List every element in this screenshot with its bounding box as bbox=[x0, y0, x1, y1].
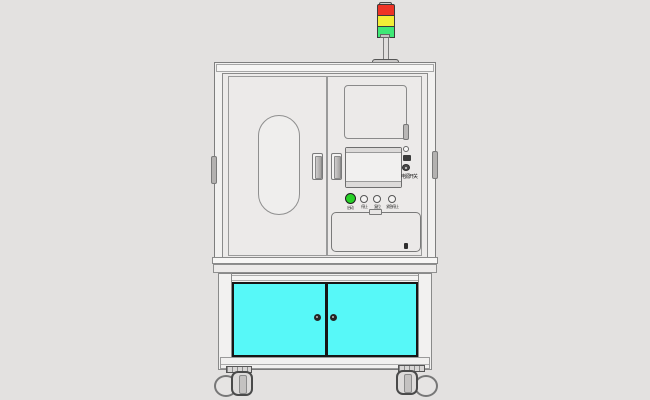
estop-button-label: 紧急停止 bbox=[383, 204, 401, 209]
right-cabinet-door-knob bbox=[330, 314, 337, 321]
screen-top-trim bbox=[346, 148, 401, 153]
door-divider bbox=[325, 282, 328, 357]
start-button-cap bbox=[345, 193, 356, 204]
right-door-handle bbox=[331, 153, 342, 180]
estop-button: 紧急停止 bbox=[383, 195, 401, 209]
lower-cabinet-top-rail bbox=[220, 275, 430, 281]
estop-button-cap bbox=[388, 195, 396, 203]
power-indicator-lamp bbox=[403, 146, 409, 152]
access-panel-lock bbox=[404, 243, 408, 249]
stadium-viewing-window bbox=[258, 115, 300, 215]
lower-cabinet-right-post bbox=[418, 273, 432, 370]
reset-button-cap bbox=[373, 195, 381, 203]
left-side-handle bbox=[211, 156, 217, 184]
hinged-upper-window bbox=[344, 85, 407, 139]
touch-screen-monitor bbox=[345, 147, 402, 188]
stop-button: 停止 bbox=[357, 195, 371, 209]
reset-button: 复位 bbox=[370, 195, 384, 209]
bench-band bbox=[213, 264, 437, 273]
screen-bottom-trim bbox=[346, 181, 401, 187]
left-cabinet-door-knob bbox=[314, 314, 321, 321]
right-side-handle bbox=[432, 151, 438, 179]
bench-top-edge bbox=[212, 257, 438, 264]
upper-window-handle bbox=[403, 124, 409, 140]
access-panel-latch bbox=[369, 209, 382, 215]
stop-button-cap bbox=[360, 195, 368, 203]
caster-left-wheel bbox=[231, 371, 253, 396]
left-door-handle bbox=[312, 153, 323, 180]
start-button: 启动 bbox=[343, 193, 357, 210]
upper-cabinet-top-bar bbox=[216, 64, 434, 72]
caster-right-wheel bbox=[396, 370, 418, 395]
rocker-switch bbox=[403, 155, 411, 161]
lower-cabinet-left-post bbox=[218, 273, 232, 370]
machine-illustration: 电源开关 启动 停止 复位 紧急停止 bbox=[0, 0, 650, 400]
start-button-label: 启动 bbox=[343, 205, 357, 210]
key-switch bbox=[402, 164, 410, 171]
power-switch-label: 电源开关 bbox=[395, 174, 423, 180]
tower-pole bbox=[383, 38, 389, 60]
